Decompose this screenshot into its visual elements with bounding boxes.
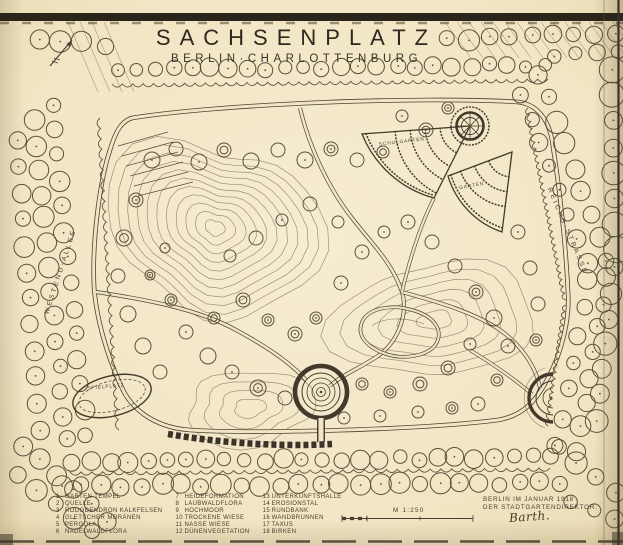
legend-item: 13UNTERKUNFTSHALLE [263, 494, 342, 501]
tree-center-dot [17, 140, 19, 142]
tree-center-dot [414, 67, 416, 69]
legend-column-3: 13UNTERKUNFTSHALLE 14EROSIONSTAL 15RUNDB… [263, 494, 342, 536]
tree-center-dot [613, 120, 615, 122]
tree-center-dot [379, 415, 381, 417]
legend-item: 8LAUBWALDFLORA [176, 501, 250, 508]
legend: 1GARTEN TEMPEL 2QUELLE 3RODODENDRON KALK… [56, 494, 342, 536]
tree-center-dot [615, 33, 617, 35]
tree-center-dot [573, 362, 575, 364]
tree-center-dot [417, 411, 419, 413]
tree-center-dot [517, 231, 519, 233]
tree-center-dot [548, 165, 550, 167]
tree-center-dot [548, 96, 550, 98]
legend-item: 7HEIDEFORMATION [176, 494, 250, 501]
tree-center-dot [554, 445, 556, 447]
tree-center-dot [596, 420, 598, 422]
tree-center-dot [72, 489, 74, 491]
tree-center-dot [440, 482, 442, 484]
legend-column-1: 1GARTEN TEMPEL 2QUELLE 3RODODENDRON KALK… [56, 494, 163, 536]
tree-center-dot [149, 274, 151, 276]
tree-center-dot [614, 266, 616, 268]
tree-center-dot [34, 351, 36, 353]
tree-center-dot [525, 66, 527, 68]
tree-center-dot [361, 251, 363, 253]
tree-center-dot [264, 69, 266, 71]
tree-center-dot [60, 365, 62, 367]
legend-item: 5PERGOLA [56, 522, 163, 529]
tree-center-dot [127, 462, 129, 464]
left-edge-shade [0, 0, 24, 545]
tree-center-dot [614, 198, 616, 200]
tree-center-dot [493, 457, 495, 459]
tree-center-dot [321, 484, 323, 486]
tree-center-dot [612, 147, 614, 149]
tree-center-dot [53, 315, 55, 317]
tree-center-dot [580, 425, 582, 427]
tree-center-dot [447, 107, 449, 109]
plan-drawing: M 1:250 WESTEND-ALLEE REICHS-STRASSE SCH… [0, 0, 623, 545]
tree-center-dot [451, 407, 453, 409]
tree-center-dot [330, 148, 332, 150]
tree-center-dot [164, 247, 166, 249]
tree-center-dot [247, 68, 249, 70]
tree-center-dot [39, 458, 41, 460]
tree-center-dot [205, 458, 207, 460]
tree-center-dot [185, 459, 187, 461]
tree-center-dot [383, 231, 385, 233]
tree-center-dot [54, 341, 56, 343]
legend-item: 16WANDBRUNNEN [263, 515, 342, 522]
tree-center-dot [18, 166, 20, 168]
tree-center-dot [520, 94, 522, 96]
tree-center-dot [401, 115, 403, 117]
tree-center-dot [357, 65, 359, 67]
legend-item: 6NADELWALDFLORA [56, 529, 163, 536]
tree-center-dot [36, 490, 38, 492]
tree-center-dot [343, 417, 345, 419]
tree-center-dot [596, 325, 598, 327]
tree-center-dot [315, 317, 317, 319]
tree-center-dot [613, 172, 615, 174]
tree-center-dot [538, 142, 540, 144]
tree-center-dot [148, 460, 150, 462]
tree-center-dot [595, 476, 597, 478]
tree-center-dot [173, 67, 175, 69]
legend-item: 10TROCKENE WIESE [176, 515, 250, 522]
tree-center-dot [22, 218, 24, 220]
legend-item: 1GARTEN TEMPEL [56, 494, 163, 501]
tree-center-dot [141, 486, 143, 488]
legend-column-2: 7HEIDEFORMATION 8LAUBWALDFLORA 9HOCHMOOR… [176, 494, 250, 536]
tree-center-dot [614, 518, 616, 520]
tree-center-dot [297, 483, 299, 485]
tree-center-dot [61, 205, 63, 207]
tree-center-dot [170, 299, 172, 301]
tree-center-dot [477, 403, 479, 405]
tree-center-dot [200, 486, 202, 488]
tree-center-dot [36, 403, 38, 405]
legend-item: 18BIRKEN [263, 529, 342, 536]
tree-center-dot [120, 487, 122, 489]
tree-center-dot [538, 480, 540, 482]
legend-item: 3RODODENDRON KALKFELSEN [56, 508, 163, 515]
tree-center-dot [592, 351, 594, 353]
tree-center-dot [281, 219, 283, 221]
tree-center-dot [611, 69, 613, 71]
tree-center-dot [568, 388, 570, 390]
tree-center-dot [294, 333, 296, 335]
tree-center-dot [475, 291, 477, 293]
tree-center-dot [380, 483, 382, 485]
tree-center-dot [576, 238, 578, 240]
tree-center-dot [559, 189, 561, 191]
tree-center-dot [397, 65, 399, 67]
plan-sheet: M 1:250 WESTEND-ALLEE REICHS-STRASSE SCH… [0, 0, 623, 545]
tree-center-dot [580, 190, 582, 192]
tree-center-dot [185, 331, 187, 333]
tree-center-dot [117, 69, 119, 71]
tree-center-dot [301, 459, 303, 461]
tree-center-dot [59, 181, 61, 183]
legend-item: 9HOCHMOOR [176, 508, 250, 515]
tree-center-dot [39, 430, 41, 432]
tree-center-dot [30, 297, 32, 299]
title-block: SACHSENPLATZ BERLIN·CHARLOTTENBURG [0, 25, 593, 65]
legend-item: 17TAXUS [263, 522, 342, 529]
legend-item: 4GLETSCHER MORÄNEN [56, 515, 163, 522]
tree-center-dot [227, 68, 229, 70]
tree-center-dot [162, 483, 164, 485]
tree-center-dot [79, 383, 81, 385]
tree-center-dot [257, 387, 259, 389]
tree-center-dot [267, 319, 269, 321]
tree-center-dot [53, 104, 55, 106]
tree-center-dot [62, 416, 64, 418]
tree-center-dot [61, 485, 63, 487]
tree-center-dot [575, 462, 577, 464]
tree-center-dot [407, 221, 409, 223]
page-subtitle: BERLIN·CHARLOTTENBURG [0, 53, 593, 65]
imprint-block: BERLIN IM JANUAR 1918 DER STADTGARTENDIR… [483, 496, 598, 520]
legend-item: 11NASSE WIESE [176, 522, 250, 529]
tree-center-dot [35, 375, 37, 377]
tree-center-dot [198, 161, 200, 163]
tree-center-dot [340, 282, 342, 284]
tree-center-dot [231, 371, 233, 373]
tree-center-dot [605, 260, 607, 262]
tree-center-dot [535, 339, 537, 341]
tree-center-dot [419, 459, 421, 461]
tree-center-dot [608, 319, 610, 321]
tree-center-dot [389, 391, 391, 393]
tree-center-dot [192, 67, 194, 69]
tree-center-dot [507, 345, 509, 347]
tree-center-dot [537, 74, 539, 76]
tree-center-dot [304, 159, 306, 161]
tree-center-dot [167, 459, 169, 461]
legend-item: 15RUNDBANK [263, 508, 342, 515]
tree-center-dot [493, 317, 495, 319]
tree-center-dot [559, 483, 561, 485]
tree-center-dot [35, 146, 37, 148]
scale-label: M 1:250 [393, 507, 425, 514]
tree-center-dot [604, 343, 606, 345]
tree-center-dot [320, 68, 322, 70]
tree-center-dot [458, 482, 460, 484]
tree-center-dot [135, 199, 137, 201]
legend-item: 2QUELLE [56, 501, 163, 508]
tree-center-dot [454, 456, 456, 458]
tree-center-dot [519, 481, 521, 483]
tree-center-dot [22, 446, 24, 448]
tree-center-dot [66, 438, 68, 440]
tree-center-dot [100, 484, 102, 486]
tree-center-dot [63, 232, 65, 234]
tree-center-dot [562, 419, 564, 421]
tree-center-dot [587, 262, 589, 264]
tree-center-dot [399, 482, 401, 484]
tree-center-dot [599, 393, 601, 395]
legend-item: 12DÜNENVEGETATION [176, 529, 250, 536]
imprint-line1: BERLIN IM JANUAR 1918 [483, 496, 598, 504]
page-title: SACHSENPLATZ [0, 25, 593, 51]
tree-center-dot [360, 484, 362, 486]
tree-center-dot [76, 332, 78, 334]
tree-center-dot [615, 492, 617, 494]
tree-center-dot [26, 272, 28, 274]
legend-item: 14EROSIONSTAL [263, 501, 342, 508]
tree-center-dot [469, 343, 471, 345]
